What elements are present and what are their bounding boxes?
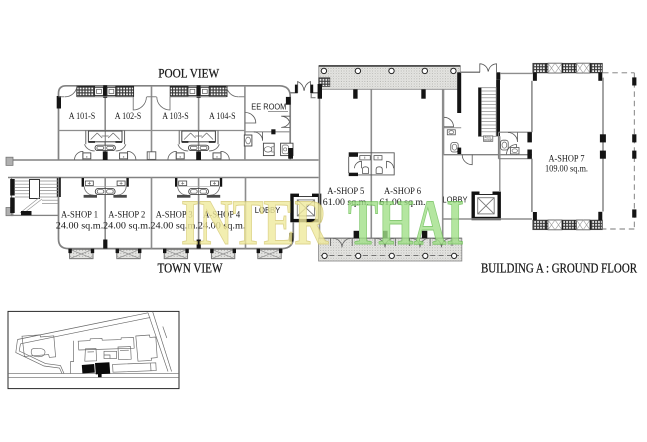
svg-text:A 102-S: A 102-S — [115, 112, 142, 122]
svg-text:A-SHOP 2: A-SHOP 2 — [108, 210, 145, 220]
svg-text:A 103-S: A 103-S — [162, 112, 189, 122]
svg-text:EE ROOM: EE ROOM — [251, 102, 286, 111]
svg-text:24.00 sq.m.: 24.00 sq.m. — [103, 221, 151, 231]
svg-text:A-SHOP 1: A-SHOP 1 — [61, 210, 98, 220]
svg-text:A 104-S: A 104-S — [209, 112, 236, 122]
svg-text:24.00 sq.m.: 24.00 sq.m. — [56, 221, 104, 231]
svg-text:BUILDING A : GROUND FLOOR: BUILDING A : GROUND FLOOR — [481, 260, 637, 275]
svg-text:INTER: INTER — [181, 187, 329, 259]
svg-text:109.00 sq.m.: 109.00 sq.m. — [545, 164, 588, 174]
svg-text:A-SHOP 7: A-SHOP 7 — [549, 154, 585, 164]
svg-text:TOWN VIEW: TOWN VIEW — [158, 261, 223, 276]
svg-text:ROOM: ROOM — [484, 139, 491, 142]
svg-text:A 101-S: A 101-S — [69, 112, 96, 122]
svg-text:POOL VIEW: POOL VIEW — [158, 66, 220, 80]
svg-text:THAI: THAI — [348, 187, 464, 259]
